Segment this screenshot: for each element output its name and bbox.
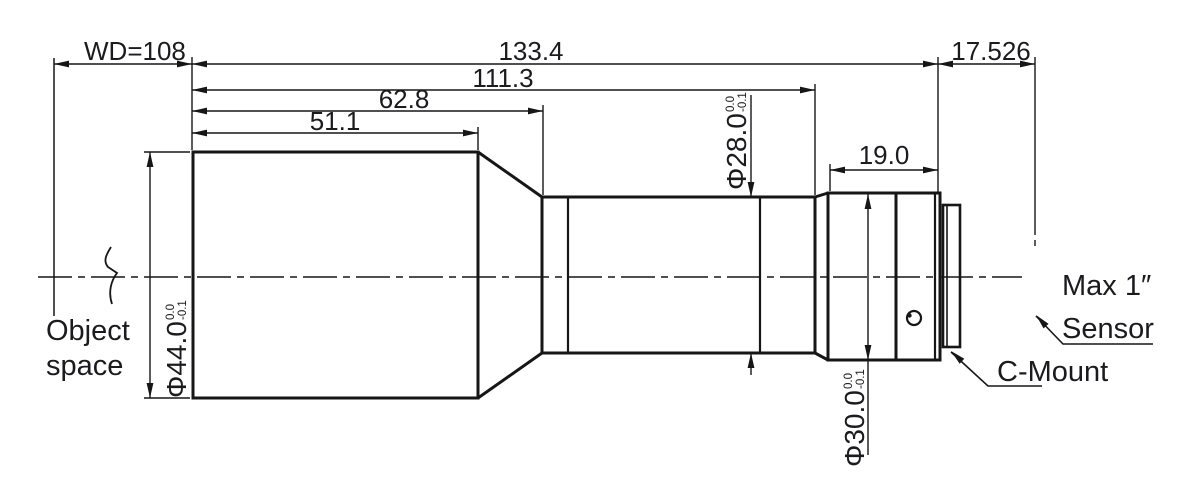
object-space-label-line1: Object <box>46 315 130 347</box>
sensor-label-line1: Max 1″ <box>1062 270 1151 302</box>
lens-technical-drawing: WD=108 133.4 111.3 62.8 51.1 19.0 17.526… <box>0 0 1191 477</box>
break-mark <box>105 247 117 304</box>
front-barrel <box>193 152 478 398</box>
dia-rear-tol-upper: 0.0 <box>843 373 855 389</box>
dia-rear-tol-lower: -0.1 <box>855 369 867 389</box>
dim-111-3: 111.3 <box>472 63 533 93</box>
c-mount-flange <box>943 205 960 347</box>
c-mount-label: C-Mount <box>997 356 1108 388</box>
dia-rear-label: Φ30.0 <box>839 390 870 467</box>
dim-total-length: 133.4 <box>498 36 563 66</box>
dia-mid-label: Φ28.0 <box>721 113 752 190</box>
dim-62-8: 62.8 <box>379 84 430 114</box>
dim-51-1: 51.1 <box>310 106 361 136</box>
dia-mid-tol-lower: -0.1 <box>737 92 749 112</box>
object-space-label-line2: space <box>46 350 123 382</box>
dim-wd-label: WD=108 <box>84 36 186 66</box>
arrowheads <box>54 61 1049 398</box>
dia-front-tol-lower: -0.1 <box>177 300 189 320</box>
dia-front-label: Φ44.0 <box>161 321 192 398</box>
dim-17-526: 17.526 <box>951 36 1031 66</box>
dim-19-0: 19.0 <box>859 140 910 170</box>
dia-mid-tol-upper: 0.0 <box>725 96 737 112</box>
sensor-label-line2: Sensor <box>1062 313 1154 345</box>
extension-lines <box>144 57 1035 398</box>
dia-front-tol-upper: 0.0 <box>165 304 177 320</box>
lens-body <box>193 152 960 398</box>
dimension-lines <box>54 64 1035 455</box>
mid-barrel <box>542 197 815 353</box>
set-screw <box>907 311 921 325</box>
